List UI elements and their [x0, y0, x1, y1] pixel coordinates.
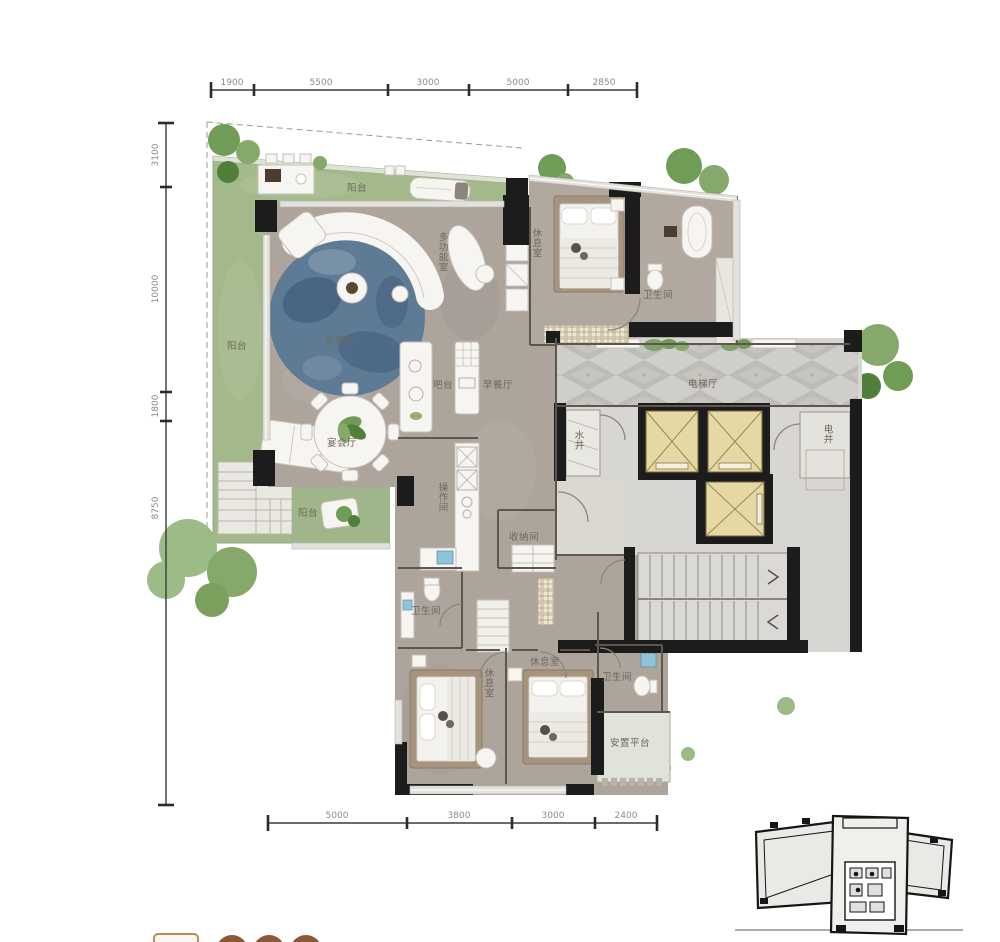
entry-shelf: [477, 600, 509, 652]
cropped-caption: [154, 934, 357, 942]
label-lounge-top: 休息室: [531, 227, 543, 258]
label-storage: 收纳间: [509, 531, 539, 543]
dimension-left: 3100 10000 1800 8750: [151, 123, 174, 805]
banquet-table: [301, 383, 399, 481]
treadmill: [409, 177, 470, 202]
dim-top-4: 2850: [593, 78, 616, 88]
label-bath-top: 卫生间: [643, 289, 673, 301]
dim-top-3: 5000: [507, 78, 530, 88]
dim-bottom-0: 5000: [326, 811, 349, 821]
caption-box: [154, 934, 198, 942]
key-plan-inset: [735, 816, 963, 934]
dim-bottom-2: 3000: [542, 811, 565, 821]
label-terrace-top: 阳台: [347, 182, 367, 194]
dimension-top: 1900 5500 3000 5000 2850: [211, 78, 637, 98]
dim-left-0: 3100: [151, 143, 161, 166]
ac-platform: [597, 712, 670, 786]
stairs: [638, 553, 788, 645]
dimension-bottom: 5000 3800 3000 2400: [268, 811, 657, 831]
dim-top-2: 3000: [417, 78, 440, 88]
floor-plan-drawing: 阳台 阳台 阳台 会客厅 宴会厅 多功能室 吧台 早餐厅 休息室 卫生间 电梯厅…: [0, 0, 1000, 942]
caption-glyph: [216, 935, 248, 942]
dim-bottom-1: 3800: [448, 811, 471, 821]
label-terrace-left: 阳台: [227, 340, 247, 352]
label-bath-mid: 卫生间: [411, 605, 441, 617]
label-electric-shaft: 电井: [822, 423, 834, 444]
label-lounge-right: 休息室: [530, 656, 560, 668]
dim-top-1: 5500: [310, 78, 333, 88]
dim-left-3: 8750: [151, 496, 161, 519]
label-bar: 吧台: [433, 379, 453, 391]
label-multifunction: 多功能室: [437, 231, 449, 272]
dim-left-2: 1800: [151, 394, 161, 417]
label-banquet: 宴会厅: [327, 437, 357, 449]
dim-top-0: 1900: [221, 78, 244, 88]
label-reception: 会客厅: [325, 335, 355, 347]
label-breakfast: 早餐厅: [483, 379, 513, 391]
foyer-floor: [556, 480, 625, 560]
dim-bottom-3: 2400: [615, 811, 638, 821]
label-elevator-hall: 电梯厅: [688, 378, 718, 390]
label-bath-bottom: 卫生间: [602, 671, 632, 683]
label-ac-platform: 安置平台: [610, 737, 650, 749]
toilet-top: [647, 270, 663, 290]
label-water-shaft: 水井: [573, 429, 585, 450]
grill: [265, 169, 281, 182]
bathtub: [682, 206, 712, 258]
dim-left-1: 10000: [151, 274, 161, 303]
floor-plan-page: 阳台 阳台 阳台 会客厅 宴会厅 多功能室 吧台 早餐厅 休息室 卫生间 电梯厅…: [0, 0, 1000, 942]
kitchen-sink: [437, 551, 453, 564]
elevator-hall-floor: [557, 344, 858, 406]
label-lounge-left: 休息室: [483, 667, 495, 698]
label-balcony-bottom: 阳台: [298, 507, 318, 519]
wardrobe-hall: [538, 578, 554, 625]
label-kitchen: 操作间: [437, 481, 449, 512]
